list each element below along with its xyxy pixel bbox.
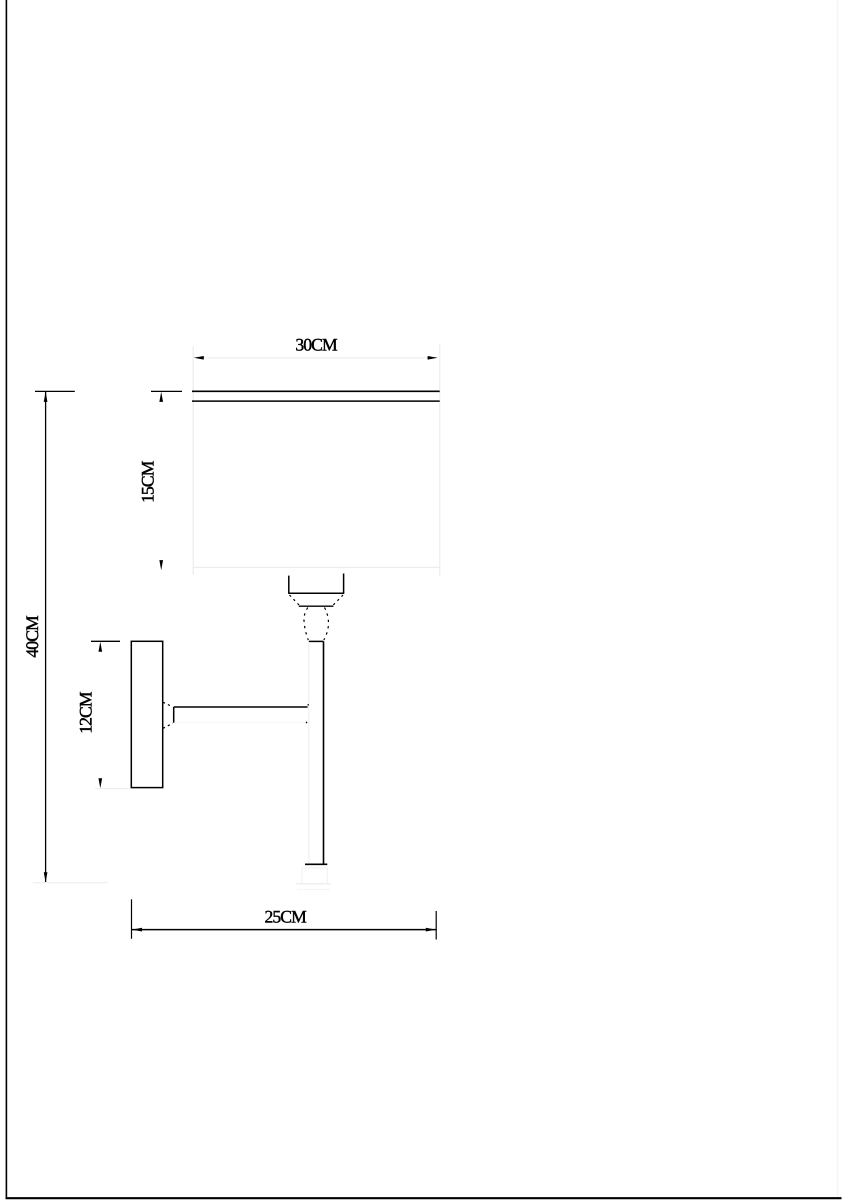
svg-text:30CM: 30CM xyxy=(295,335,338,355)
svg-text:40CM: 40CM xyxy=(22,615,42,658)
svg-text:25CM: 25CM xyxy=(265,907,308,927)
svg-text:15CM: 15CM xyxy=(137,460,157,503)
svg-text:12CM: 12CM xyxy=(76,691,96,734)
